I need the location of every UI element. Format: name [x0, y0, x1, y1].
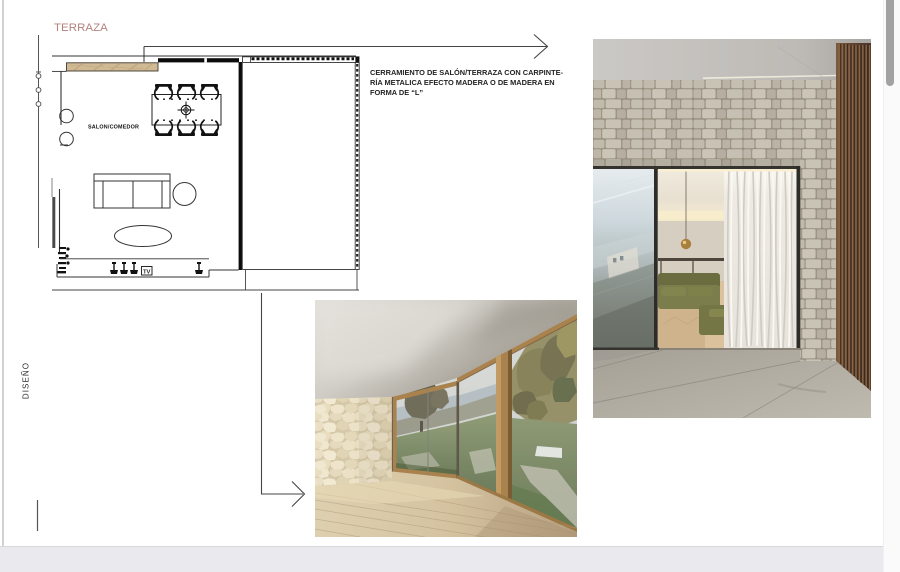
svg-text:SALON/COMEDOR: SALON/COMEDOR — [88, 125, 139, 131]
svg-text:TV: TV — [143, 270, 151, 276]
